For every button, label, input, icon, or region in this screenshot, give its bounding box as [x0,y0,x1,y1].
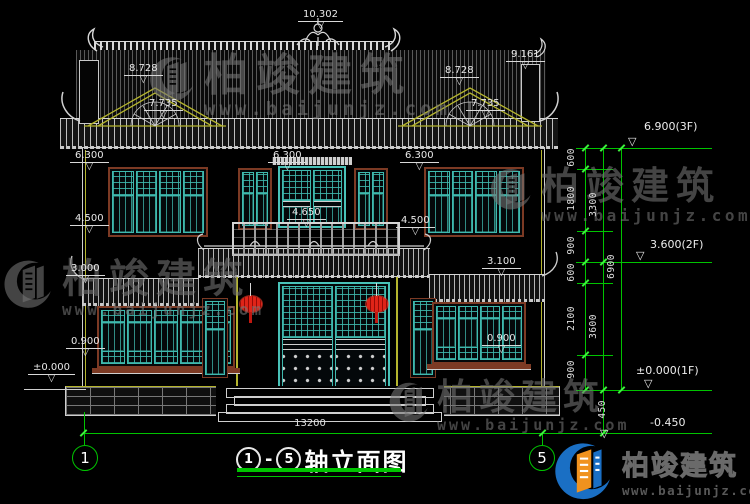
red-lantern-left [240,296,262,312]
elev-balcony: 4.650 [287,207,326,228]
porch-column-right [396,276,398,392]
dim-450: 450 [597,400,608,419]
elev-win2-right: 4.500 [396,215,435,236]
right-roof-end-wall [521,64,540,122]
left-roof-end-wall [79,60,99,124]
window-2f-tall-right [354,168,388,230]
dim-1800: 1800 [566,186,577,211]
axis-bubble-1: 1 [72,445,98,471]
porch-column-left [236,276,238,392]
floor-tri-1f: ▽ [644,378,652,389]
dim-900b: 900 [566,360,577,379]
floor-tri-2f: ▽ [636,250,644,261]
elev-eave-center: 6.300 [268,150,307,171]
elev-gable-left-eave: 7.735 [144,98,183,119]
dim-3600: 3600 [588,314,599,339]
sidelight-left [202,298,228,378]
level-line-3f [576,148,712,149]
chain-line-outer [621,148,622,390]
window-2f-right [424,167,524,237]
elev-ground-left: ±0.000 [28,362,75,383]
brand-name: 柏竣建筑 [622,444,750,483]
watermark-logo-icon [0,258,56,310]
elev-porch-left: 3.000 [66,263,105,284]
red-lantern-right [366,296,388,312]
axis-leader-right [542,433,543,445]
dim-3300: 3300 [588,192,599,217]
elev-eave-right: 6.300 [400,150,439,171]
elev-win1-right: 0.900 [482,333,521,354]
window-2f-tall-left [238,168,272,230]
entrance-steps [216,386,444,422]
level-line-1f [576,390,712,391]
watermark-right: 柏竣建筑 www.baijunjz.com [487,166,750,225]
dim-600a: 600 [566,148,577,167]
brand-logo-block: 柏竣建筑 www.baijunjz.com [550,440,750,502]
brand-logo-icon [550,440,616,502]
title-underline-thick [237,468,401,472]
porch-roof-right-wing [429,274,545,302]
dim-6900: 6900 [606,254,617,279]
floor-mark-3f: 6.900(3F) [644,120,697,133]
elev-porch-right: 3.100 [482,256,521,277]
ground-marker-line-left [24,389,86,390]
floor-tri-foundation: ▽ [600,428,608,439]
floor-mark-foundation: -0.450 [650,416,685,429]
elev-win2-left: 4.500 [70,213,109,234]
wall-right-edge [544,148,545,388]
dim-total-width: 13200 [270,418,350,429]
elev-roof-tip-right: 9.161 [506,49,545,70]
level-line-2f [576,262,712,263]
elev-gable-right-eave: 7.735 [466,98,505,119]
brand-url: www.baijunjz.com [622,483,750,498]
floor-mark-1f: ±0.000(1F) [636,364,699,377]
elev-peak: 10.302 [298,9,343,30]
window-2f-left [108,167,208,237]
dim-600b: 600 [566,263,577,282]
wall-top-line [82,147,545,148]
floor-tri-3f: ▽ [628,136,636,147]
sill-1f-right [427,364,531,370]
elev-win1-left: 0.900 [66,336,105,357]
elev-eave-left: 6.300 [70,150,109,171]
corner-line-right [541,150,542,386]
dim-2100: 2100 [566,306,577,331]
title-underline-thin [237,476,401,477]
floor-mark-2f: 3.600(2F) [650,238,703,251]
porch-beam-line [198,276,430,277]
dim-900a: 900 [566,236,577,255]
main-eave-band [60,118,558,149]
elev-gable-left-top: 8.728 [124,63,163,84]
title-dash: - [265,449,272,470]
elev-gable-right-top: 8.728 [440,65,479,86]
cad-elevation-canvas: 10.302 8.728 7.735 8.728 7.735 9.161 6.3… [0,0,750,504]
